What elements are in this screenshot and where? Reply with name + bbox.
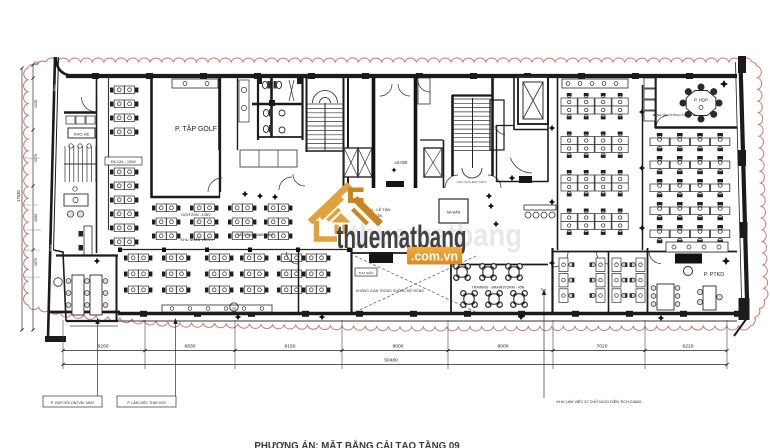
svg-text:4135: 4135 (33, 100, 38, 109)
svg-text:P. HỌP HỘI ONTVN: 16H2: P. HỌP HỘI ONTVN: 16H2 (51, 400, 94, 405)
svg-text:8150: 8150 (285, 344, 296, 350)
svg-text:Background: Background (25, 248, 40, 252)
svg-text:+4.0 CAO 2.85M: +4.0 CAO 2.85M (21, 228, 40, 232)
svg-text:TRAINING - BRAINSTORM - 45N: TRAINING - BRAINSTORM - 45N (472, 286, 525, 290)
svg-text:50480: 50480 (384, 358, 398, 364)
svg-text:KHU NHÂN VIÊN 2: KHU NHÂN VIÊN 2 (181, 237, 214, 242)
svg-text:BẢNG YÊU PHÒNG TẬP GYM: BẢNG YÊU PHÒNG TẬP GYM (653, 112, 696, 117)
svg-text:KHO HỆ: KHO HỆ (74, 132, 90, 137)
svg-text:KHU LÀM VIỆC 57 CHỖ NGỒI DIỆN: KHU LÀM VIỆC 57 CHỖ NGỒI DIỆN TÍCH 216M2 (557, 399, 642, 404)
svg-text:KHU VỰC ĐỢI T.MÁY: KHU VỰC ĐỢI T.MÁY (457, 180, 487, 184)
svg-text:200: 200 (33, 61, 39, 65)
svg-text:17630: 17630 (16, 190, 21, 202)
svg-text:7020: 7020 (597, 344, 608, 350)
svg-text:KHÔNG GIAN TRỐNG KHÔNG MỞ RỘNG: KHÔNG GIAN TRỐNG KHÔNG MỞ RỘNG (356, 288, 424, 293)
svg-text:GB: GB (232, 307, 236, 311)
svg-text:VÁCH LAM 40x80x1.8M: VÁCH LAM 40x80x1.8M (237, 233, 273, 237)
svg-text:6830: 6830 (185, 344, 196, 350)
svg-text:P. LÀM VIỆC THAY ĐỔI: P. LÀM VIỆC THAY ĐỔI (127, 400, 165, 405)
svg-text:4970: 4970 (33, 257, 38, 266)
svg-text:SA BÀN: SA BÀN (447, 211, 461, 215)
svg-text:GOLFZON - 13NV: GOLFZON - 13NV (181, 213, 211, 217)
svg-text:8000: 8000 (498, 344, 509, 350)
svg-text:±0.000: ±0.000 (395, 160, 408, 165)
svg-text:ĐK CAL - 13NV: ĐK CAL - 13NV (111, 160, 137, 164)
svg-text:P. HỌP: P. HỌP (694, 98, 708, 103)
svg-text:THƯ GIÃN: THƯ GIÃN (359, 270, 374, 275)
svg-text:6220: 6220 (683, 344, 694, 350)
svg-text:Tivi: Tivi (540, 288, 545, 292)
svg-text:P. PTKD: P. PTKD (704, 272, 724, 278)
svg-text:6260: 6260 (98, 344, 109, 350)
svg-text:B.cao 1.2m: B.cao 1.2m (24, 203, 39, 207)
svg-text:P. TẬP GOLF: P. TẬP GOLF (175, 124, 217, 133)
svg-text:.com.vn: .com.vn (411, 250, 458, 264)
svg-text:Background: Background (25, 275, 40, 279)
svg-text:8000: 8000 (393, 344, 404, 350)
svg-text:PHƯƠNG ÁN: MẶT BẰNG CẢI TẠO TẦ: PHƯƠNG ÁN: MẶT BẰNG CẢI TẠO TẦNG 09 (254, 440, 460, 448)
svg-text:4930: 4930 (33, 213, 38, 222)
svg-text:Background: Background (25, 156, 40, 160)
